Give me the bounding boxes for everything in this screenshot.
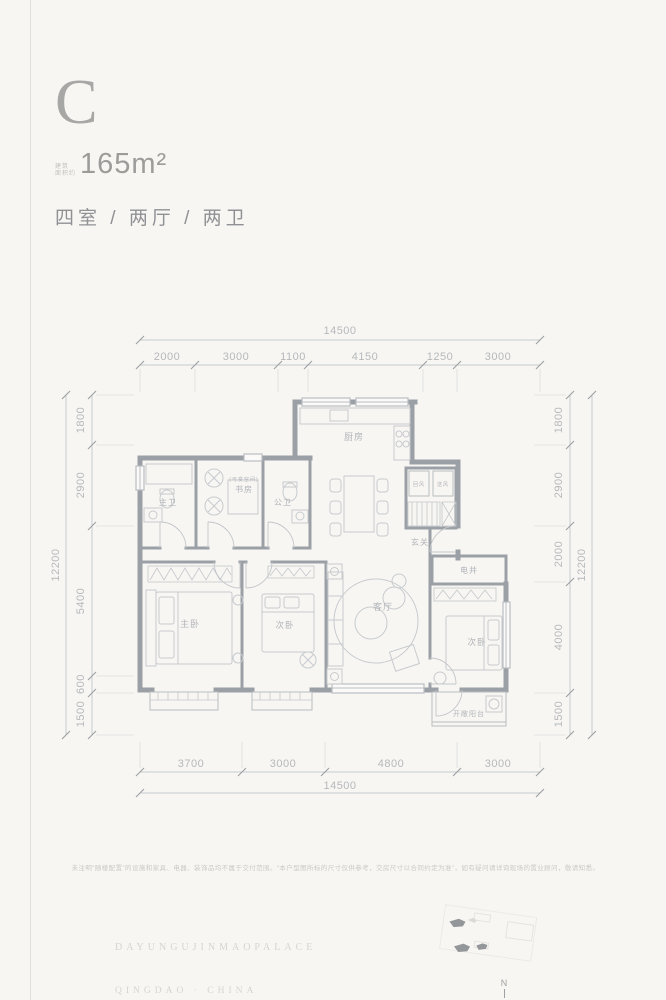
dim-label: 1100 [280,351,306,363]
compass-label: N [494,978,514,988]
compass-north: N [494,978,514,998]
dim-label: 14500 [323,325,356,337]
floorplan-drawing: 14500 2000 3000 1100 4150 1250 3000 3700… [0,0,666,1000]
dim-label: 2900 [75,472,87,498]
room-label-utility-shaft: 电井 [460,565,478,575]
dim-label: 3000 [223,351,249,363]
dim-label: 4800 [378,758,404,770]
city-watermark: QINGDAO · CHINA [115,986,257,996]
dim-label: 5400 [75,588,87,614]
disclaimer-text: 未注明“随楼配置”的设施和家具、电器、装饰品均不属于交付范围。“本户型图所标的尺… [63,862,608,872]
dim-label: 2000 [553,541,565,567]
dim-label: 1250 [427,351,453,363]
site-plan-sketch [436,903,540,965]
dim-label: 3700 [178,758,204,770]
floorplan-page: C 建筑 面积约 165m² 四室 / 两厅 / 两卫 14500 2000 3… [0,0,666,1000]
dim-label: 3000 [485,758,511,770]
room-label-shaft-left: 回风 [413,482,425,488]
dim-label: 1500 [553,701,565,727]
room-label-living: 客厅 [373,601,393,612]
dimension-chain-right: 1800 2900 2000 4000 1500 12200 [534,391,596,739]
room-label-guest-bath: 公卫 [274,498,292,507]
dim-label: 4150 [352,351,378,363]
dim-label: 1500 [75,701,87,727]
dim-label: 14500 [323,780,356,792]
dim-label: 1800 [75,407,87,433]
furniture [144,408,502,712]
project-name-watermark: DAYUNGUJINMAOPALACE [115,942,316,953]
dim-label: 4000 [553,624,565,650]
room-label-study-note: (可变空间) [229,476,258,483]
dim-label: 2900 [553,472,565,498]
bay-window-bedroom2 [252,692,312,710]
dimension-chain-left: 12200 1800 2900 5400 600 1500 [50,391,134,739]
room-label-kitchen: 厨房 [344,431,364,442]
dim-label: 1800 [553,407,565,433]
dim-label: 600 [75,674,87,694]
compass-arrow [504,989,505,998]
room-label-master-bath: 主卫 [159,497,177,507]
dim-label: 2000 [154,351,180,363]
walls-interior [140,458,506,690]
room-label-foyer: 玄关 [411,537,429,547]
dimension-chain-bottom: 3700 3000 4800 3000 14500 [136,742,544,797]
core-block [406,468,456,528]
room-label-shaft-right: 送风 [437,481,449,488]
room-label-study: 书房 [235,484,253,494]
room-labels: 厨房 主卫 (可变空间) 书房 公卫 玄关 回风 送风 电井 主卧 次卧 客厅 … [159,431,487,718]
room-label-master-bedroom: 主卧 [180,618,200,629]
dim-label: 12200 [576,548,588,581]
room-label-balcony: 开敞阳台 [453,709,485,718]
room-label-bedroom3: 次卧 [467,637,486,647]
dim-label: 3000 [485,351,511,363]
dim-label: 12200 [50,548,62,581]
bay-window-master [150,692,218,710]
room-label-bedroom2: 次卧 [275,620,294,630]
dim-label: 3000 [270,758,296,770]
core-shafts [408,471,456,526]
dimension-chain-top: 14500 2000 3000 1100 4150 1250 3000 [136,325,544,392]
